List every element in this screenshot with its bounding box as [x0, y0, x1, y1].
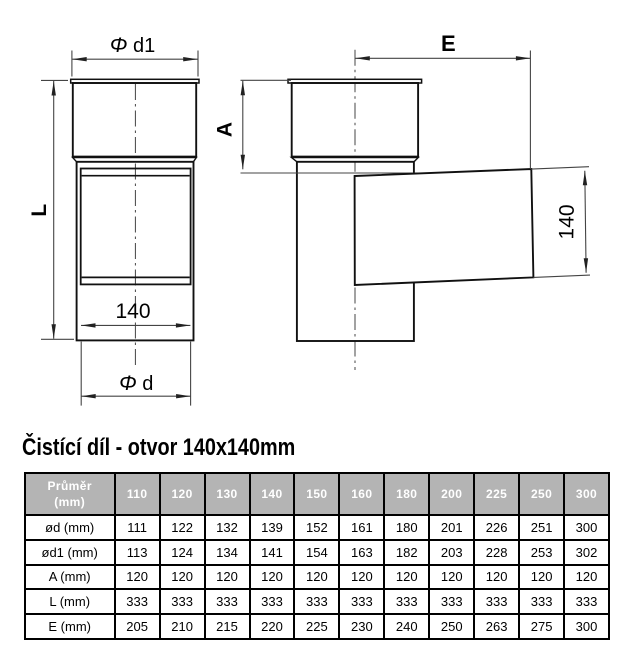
svg-text:E: E: [441, 31, 456, 56]
svg-text:A: A: [214, 122, 237, 137]
svg-text:140: 140: [555, 204, 579, 239]
svg-text:Φ d1: Φ d1: [110, 34, 155, 57]
svg-text:Φ d: Φ d: [119, 372, 153, 395]
svg-text:L: L: [28, 204, 51, 217]
svg-text:140: 140: [115, 300, 150, 323]
